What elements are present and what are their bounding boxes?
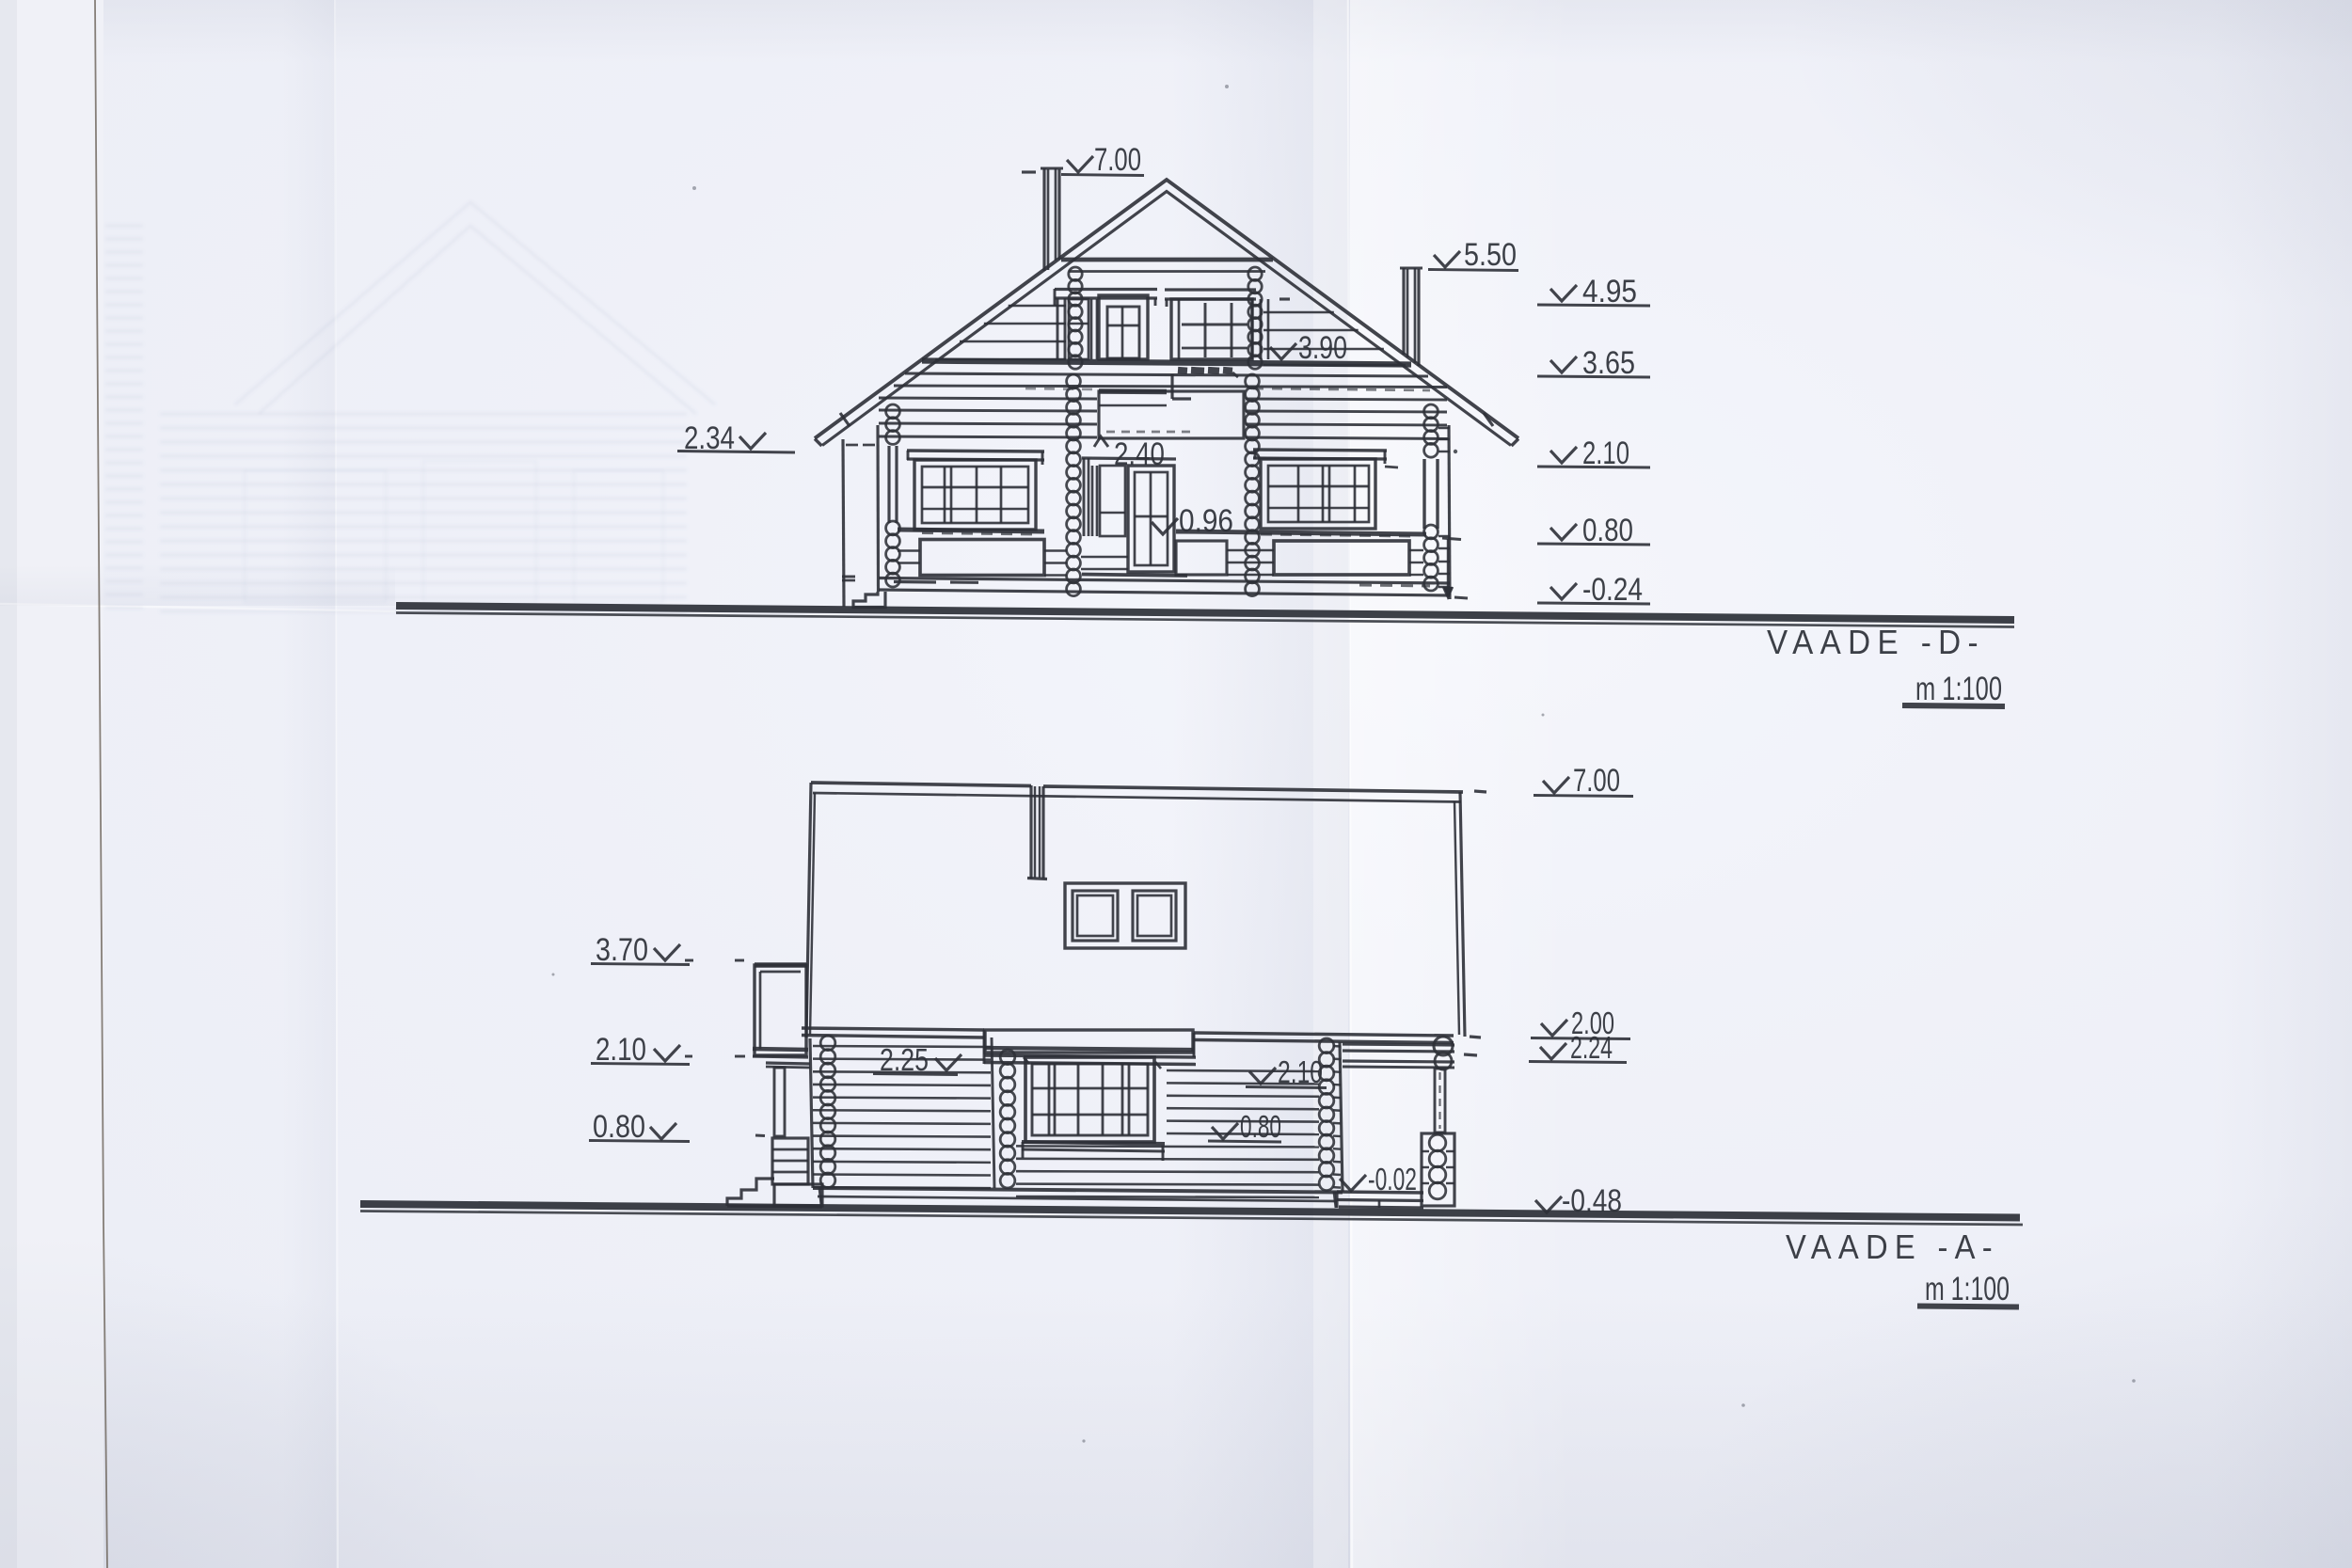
svg-text:m 1:100: m 1:100 — [1915, 671, 2002, 707]
svg-text:2.25: 2.25 — [880, 1042, 929, 1077]
svg-text:VAADE -D-: VAADE -D- — [1767, 623, 1985, 661]
svg-text:-0.48: -0.48 — [1562, 1183, 1622, 1219]
svg-text:0.80: 0.80 — [1240, 1109, 1281, 1144]
svg-text:7.00: 7.00 — [1573, 763, 1620, 799]
svg-text:7.00: 7.00 — [1094, 142, 1141, 178]
svg-text:2.24: 2.24 — [1570, 1030, 1613, 1065]
svg-text:2.10: 2.10 — [1278, 1054, 1323, 1089]
svg-text:VAADE -A-: VAADE -A- — [1786, 1227, 1999, 1266]
svg-text:m 1:100: m 1:100 — [1925, 1271, 2010, 1307]
svg-text:3.90: 3.90 — [1298, 330, 1347, 366]
svg-text:5.50: 5.50 — [1464, 237, 1517, 273]
